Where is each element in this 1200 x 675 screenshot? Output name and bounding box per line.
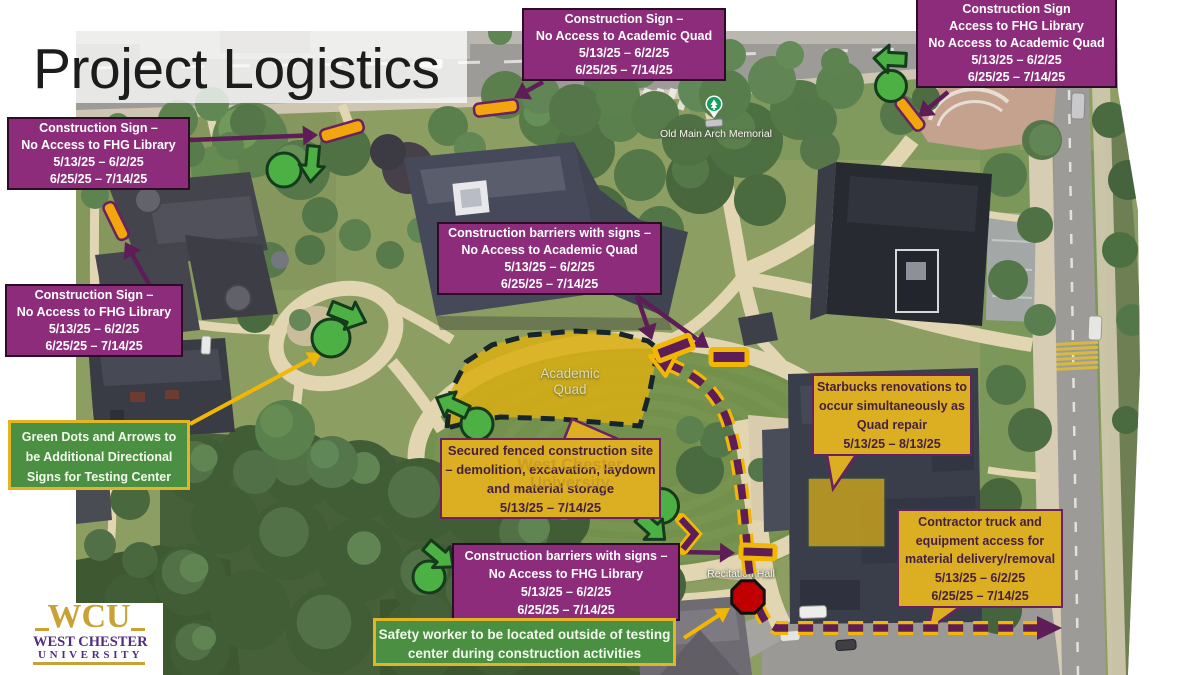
svg-text:Quad: Quad [553, 382, 586, 397]
svg-text:Old Main Arch Memorial: Old Main Arch Memorial [660, 128, 772, 140]
svg-text:Academic: Academic [540, 366, 600, 381]
svg-text:Recitation Hall: Recitation Hall [707, 568, 775, 580]
